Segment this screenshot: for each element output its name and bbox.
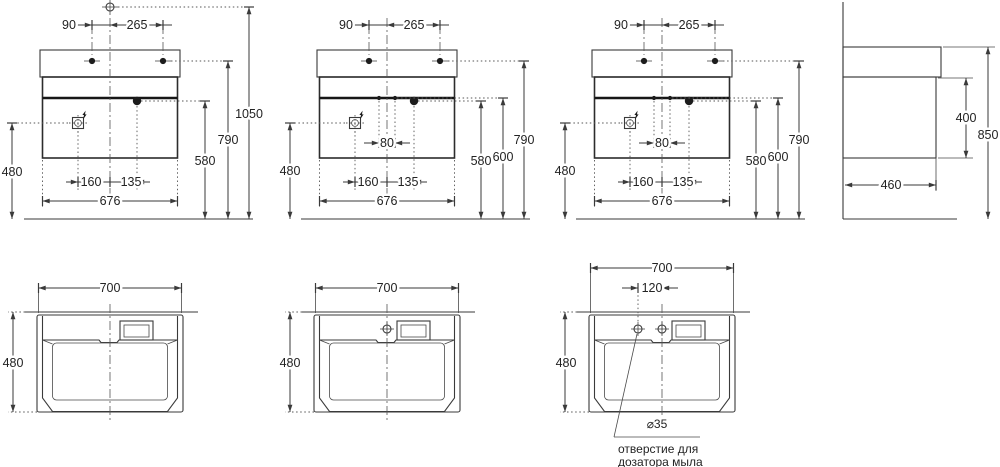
dim-label-850: 850 xyxy=(978,128,999,142)
dim-label-80: 80 xyxy=(380,136,394,150)
dim-label-580: 580 xyxy=(195,154,216,168)
dim-label-80: 80 xyxy=(655,136,669,150)
dim-label-160: 160 xyxy=(358,175,379,189)
dim-label-160: 160 xyxy=(633,175,654,189)
top-view-3: 700 120 480 ⌀35 отверстие для дозатора м… xyxy=(556,261,750,467)
dim-label-480: 480 xyxy=(280,164,301,178)
dim-label-480: 480 xyxy=(280,356,301,370)
dim-label-700: 700 xyxy=(100,281,121,295)
dim-label-135: 135 xyxy=(398,175,419,189)
dim-label-480: 480 xyxy=(3,356,24,370)
front-view-3: 90 265 80 160 135 676 480 580 600 790 xyxy=(555,18,810,219)
dim-label-460: 460 xyxy=(881,178,902,192)
front-view-1: 90 265 160 135 676 480 580 790 1050 xyxy=(2,0,263,219)
soap-dispenser-hole-icon xyxy=(631,322,645,336)
dim-label-480: 480 xyxy=(556,356,577,370)
cabinet-side-outline xyxy=(843,77,936,158)
dim-label-90: 90 xyxy=(339,18,353,32)
dim-label-600: 600 xyxy=(493,150,514,164)
dim-label-676: 676 xyxy=(100,194,121,208)
dim-label-790: 790 xyxy=(789,133,810,147)
basin-side-outline xyxy=(843,47,941,77)
dim-label-1050: 1050 xyxy=(235,107,263,121)
top-view-2: 700 480 xyxy=(280,281,475,420)
dim-label-580: 580 xyxy=(746,154,767,168)
technical-drawing-sheet: 90 265 160 135 676 480 580 790 1050 90 2… xyxy=(0,0,1000,467)
dim-label-diameter-35: ⌀35 xyxy=(647,417,668,431)
dim-label-790: 790 xyxy=(514,133,535,147)
dim-label-700: 700 xyxy=(652,261,673,275)
front-view-2: 90 265 80 160 135 676 480 580 600 790 xyxy=(280,18,535,219)
dim-label-790: 790 xyxy=(218,133,239,147)
dim-label-676: 676 xyxy=(652,194,673,208)
dim-label-400: 400 xyxy=(956,111,977,125)
vanity-dimension-drawing: 90 265 160 135 676 480 580 790 1050 90 2… xyxy=(0,0,1000,467)
dim-label-480: 480 xyxy=(555,164,576,178)
dim-label-700: 700 xyxy=(377,281,398,295)
dim-label-600: 600 xyxy=(768,150,789,164)
dim-label-160: 160 xyxy=(81,175,102,189)
dim-label-120: 120 xyxy=(642,281,663,295)
soap-dispenser-note-line2: дозатора мыла xyxy=(618,455,703,467)
top-view-1: 700 480 xyxy=(3,281,198,420)
dim-label-90: 90 xyxy=(614,18,628,32)
side-view: 460 400 850 xyxy=(843,2,998,219)
soap-dispenser-note-line1: отверстие для xyxy=(618,442,698,456)
dim-label-580: 580 xyxy=(471,154,492,168)
dim-label-480: 480 xyxy=(2,165,23,179)
dim-label-265: 265 xyxy=(404,18,425,32)
dim-label-265: 265 xyxy=(127,18,148,32)
dim-label-676: 676 xyxy=(377,194,398,208)
dim-label-135: 135 xyxy=(673,175,694,189)
dim-label-90: 90 xyxy=(62,18,76,32)
dim-label-265: 265 xyxy=(679,18,700,32)
dim-label-135: 135 xyxy=(121,175,142,189)
